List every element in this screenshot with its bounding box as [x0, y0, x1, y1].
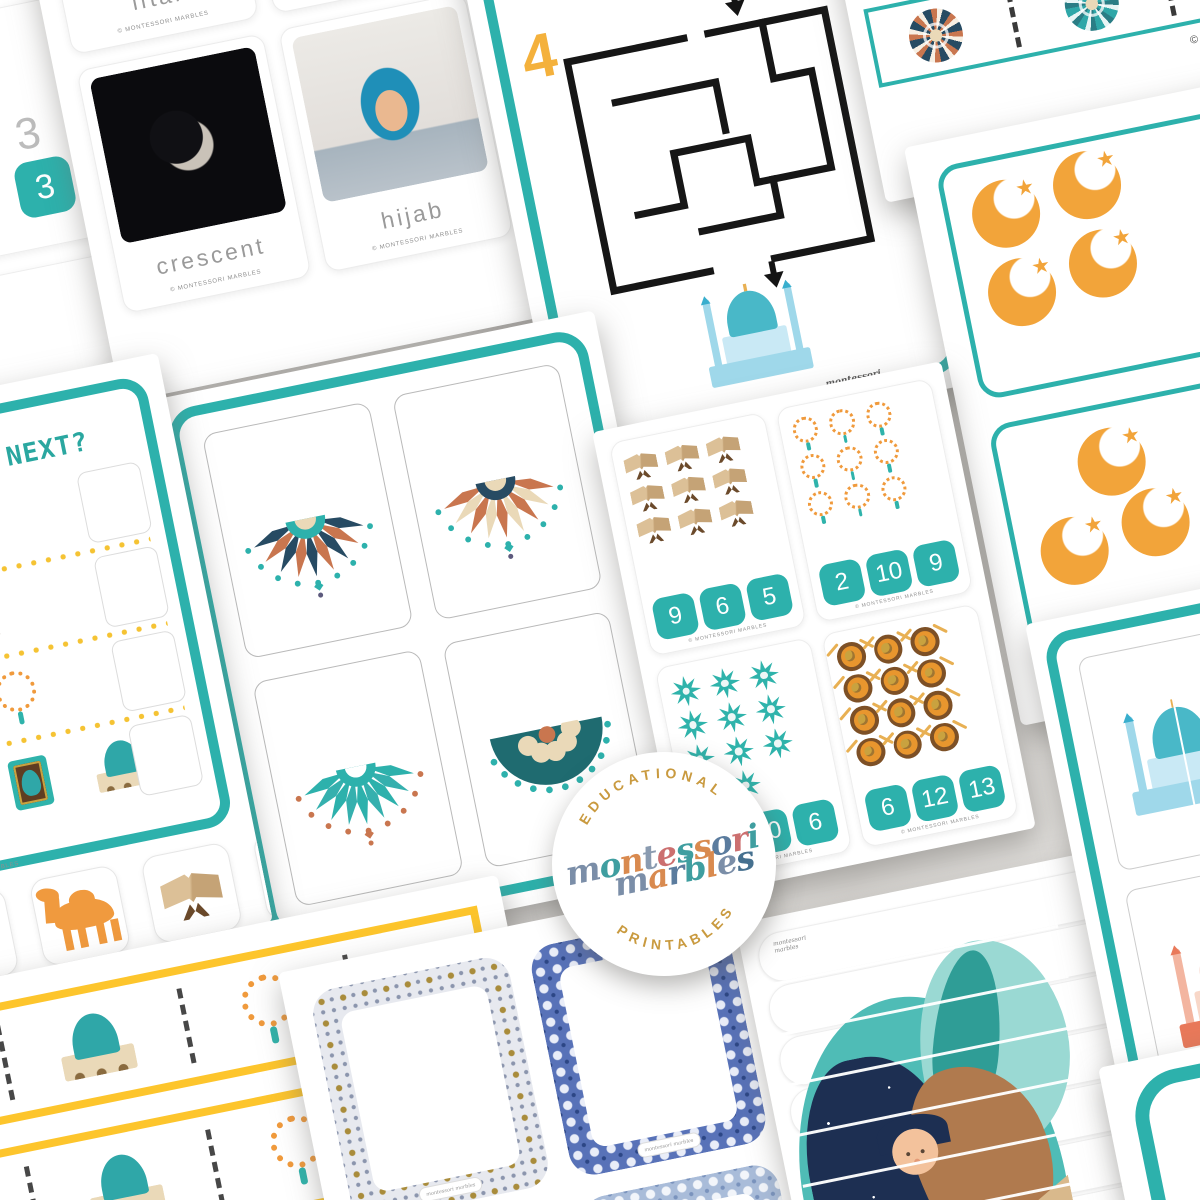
- drum-icon: [834, 640, 868, 674]
- mosque-icon: [53, 1006, 138, 1082]
- crescent-icon: [1035, 511, 1115, 591]
- mandala-medallion-icon: [904, 4, 968, 68]
- starflower-icon: [760, 725, 796, 761]
- copyright-text: © MONTESSORI MARBLES: [0, 861, 20, 885]
- number-tile: 3: [12, 154, 78, 220]
- mosque-illustration: [691, 266, 816, 390]
- quran-icon: [635, 511, 673, 546]
- drum-icon: [914, 656, 948, 690]
- number-tile: 12: [910, 773, 960, 823]
- dashed-cut-line: [24, 1166, 44, 1200]
- camel-icon: [35, 877, 124, 955]
- flashcard: crescent© MONTESSORI MARBLES: [76, 33, 312, 314]
- quran-icon: [622, 447, 660, 482]
- number-tile: 10: [864, 548, 914, 598]
- quran-icon: [663, 439, 701, 474]
- brand-badge: EDUCATIONAL PRINTABLES montessori marble…: [532, 732, 796, 996]
- counting-card: 2109© MONTESSORI MARBLES: [775, 378, 973, 623]
- prayer-mat-icon: [7, 754, 55, 811]
- camel-legs: [63, 928, 75, 951]
- dashed-cut-line: [0, 1025, 15, 1100]
- drum-icon: [854, 735, 888, 769]
- mosque-icon: [82, 1148, 167, 1200]
- minaret-icon: [1124, 715, 1148, 792]
- drum-icon: [884, 696, 918, 730]
- quran-icon: [717, 494, 755, 529]
- quran-icon: [157, 862, 225, 924]
- number-tile: 9: [911, 539, 961, 589]
- drumstick-icon: [826, 643, 838, 657]
- quran-icon: [676, 502, 714, 537]
- drumstick-icon: [932, 623, 947, 632]
- minaret-icon: [702, 299, 723, 368]
- printables-collage: 3 3 © MONTESSORI MARBLES + 5 84 © MONTES…: [0, 0, 1200, 1200]
- cutting-strip: [863, 0, 1200, 88]
- drum-icon: [847, 703, 881, 737]
- flashcard-label: hijab: [379, 196, 447, 235]
- quran-icon: [670, 471, 708, 506]
- beads-icon: [833, 444, 868, 483]
- counting-card: 61213© MONTESSORI MARBLES: [821, 603, 1019, 848]
- flashcard-label: iftar: [129, 0, 187, 16]
- camel-head: [43, 890, 60, 923]
- number-tile: 2: [817, 558, 867, 608]
- crescent-icon: [982, 252, 1062, 332]
- quran-icon: [704, 430, 742, 465]
- drumstick-icon: [952, 719, 967, 728]
- beads-icon: [825, 407, 860, 446]
- crescent-icon: [966, 174, 1046, 254]
- drumstick-icon: [832, 675, 844, 689]
- drumstick-icon: [939, 655, 954, 664]
- starflower-icon: [707, 665, 743, 701]
- beads-icon: [877, 473, 912, 512]
- gold-dot-frame: montessori marbles: [309, 953, 552, 1200]
- mosque-dome: [1194, 934, 1200, 992]
- drumstick-icon: [945, 687, 960, 696]
- hijab-photo: [291, 5, 489, 203]
- beads-icon: [862, 399, 897, 438]
- drum-icon: [891, 728, 925, 762]
- crescent-photo: [89, 46, 287, 244]
- beads-icon: [0, 667, 45, 729]
- crescent-icon: [1047, 145, 1127, 225]
- flashcard-grid: iftar© MONTESSORI MARBLESdates© MONTESSO…: [24, 0, 514, 314]
- crescent-icon: [1063, 223, 1143, 303]
- half-mandala-drawing: [223, 500, 412, 658]
- beads-icon: [796, 451, 831, 490]
- number-tile: 9: [651, 592, 701, 642]
- blue-mosque-illustration: [1112, 679, 1200, 818]
- number-tile: 6: [863, 783, 913, 833]
- starflower-icon: [746, 657, 782, 693]
- drum-icon: [841, 671, 875, 705]
- number-tile: 5: [745, 572, 795, 622]
- mosque-body: [1194, 977, 1200, 1022]
- quran-icon: [711, 462, 749, 497]
- drumstick-icon: [839, 707, 851, 721]
- icon-grid: [832, 616, 999, 790]
- beads-icon: [804, 488, 839, 527]
- mandala-medallion-icon: [1060, 0, 1124, 36]
- dashed-cut-line: [176, 988, 196, 1063]
- starflower-icon: [753, 691, 789, 727]
- quran-icon: [628, 479, 666, 514]
- drum-icon: [921, 688, 955, 722]
- copyright-text: © MONTESSORI MARBLES: [117, 10, 209, 34]
- drum-icon: [878, 664, 912, 698]
- starflower-icon: [714, 699, 750, 735]
- drum-icon: [908, 625, 942, 659]
- drum-icon: [927, 720, 961, 754]
- starflower-icon: [668, 673, 704, 709]
- dashed-cut-line: [1006, 0, 1022, 48]
- beads-icon: [870, 436, 905, 475]
- number-tile: 6: [791, 798, 841, 848]
- brand-wordmark: montessori marbles: [532, 732, 796, 996]
- lantern-icon: [0, 591, 1, 645]
- number-tiles: 3: [12, 154, 78, 220]
- crescent-icon: [1115, 482, 1195, 562]
- salmon-mosque-illustration: [1159, 911, 1200, 1050]
- beads-icon: [840, 481, 875, 520]
- frame-blank-center: [339, 984, 521, 1193]
- number-tile: 13: [957, 764, 1007, 814]
- dashed-cut-line: [1161, 0, 1177, 16]
- cutting-strips: [845, 0, 1200, 88]
- half-mandala-drawing: [412, 462, 601, 620]
- icon-grid: [786, 390, 953, 564]
- drum-icon: [871, 632, 905, 666]
- equation-text: 3: [11, 104, 61, 161]
- minaret-icon: [1171, 948, 1195, 1025]
- counting-card: 965© MONTESSORI MARBLES: [609, 412, 807, 657]
- kaaba-icon: [0, 909, 1, 968]
- frame-blank-center: [609, 1192, 791, 1200]
- number-tile: 6: [698, 582, 748, 632]
- beads-icon: [789, 414, 824, 453]
- icon-grid: [620, 424, 787, 598]
- starflower-icon: [675, 707, 711, 743]
- drumstick-icon: [845, 739, 857, 753]
- dashed-cut-line: [205, 1129, 225, 1200]
- mosque-dome: [1146, 701, 1200, 759]
